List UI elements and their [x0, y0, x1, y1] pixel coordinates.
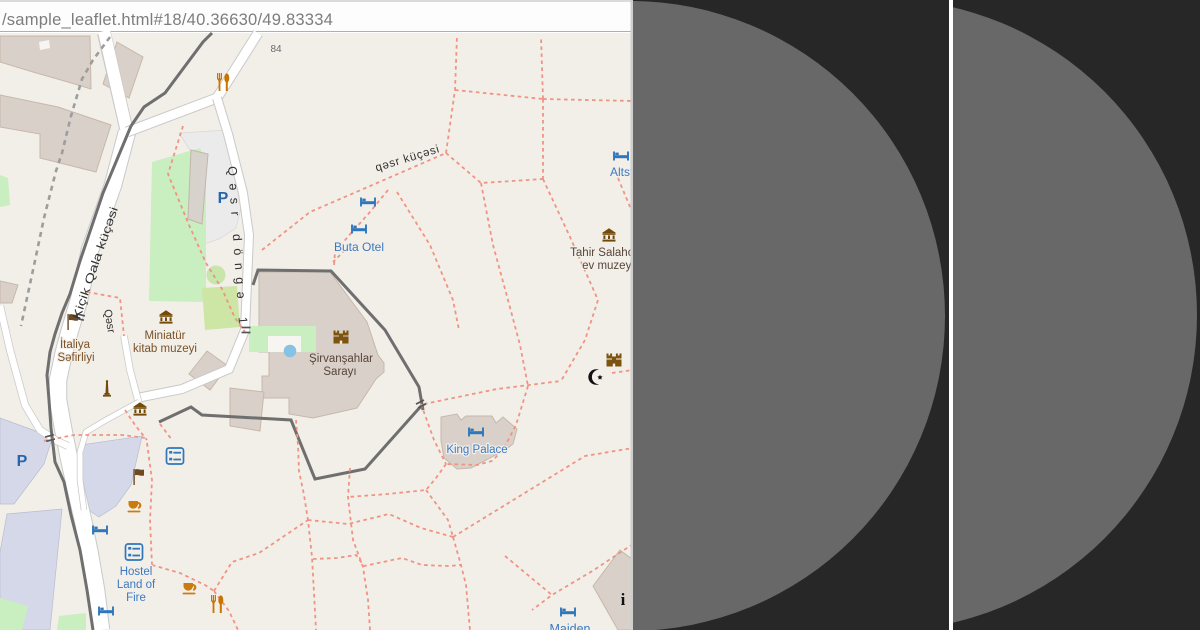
svg-text:P: P	[218, 190, 229, 207]
svg-text:İtaliya: İtaliya	[60, 338, 91, 351]
svg-text:Fire: Fire	[126, 592, 146, 604]
svg-text:Maiden: Maiden	[550, 622, 591, 630]
svg-text:Miniatür: Miniatür	[145, 330, 186, 342]
svg-text:Hostel: Hostel	[120, 566, 153, 578]
svg-text:i: i	[621, 590, 626, 609]
svg-text:P: P	[17, 453, 28, 470]
svg-text:84: 84	[270, 44, 282, 55]
svg-text:Land of: Land of	[117, 579, 156, 591]
svg-text:Səfirliyi: Səfirliyi	[57, 352, 94, 364]
svg-text:ev muzeyi: ev muzeyi	[582, 260, 633, 272]
svg-text:Altstadt: Altstadt	[610, 165, 633, 179]
svg-text:King Palace: King Palace	[446, 444, 507, 456]
svg-text:Buta Otel: Buta Otel	[334, 240, 384, 254]
svg-text:Sarayı: Sarayı	[323, 366, 356, 378]
svg-text:kitab muzeyi: kitab muzeyi	[133, 343, 197, 355]
svg-text:Şirvanşahlar: Şirvanşahlar	[309, 353, 373, 365]
svg-text:Tahir Salahov: Tahir Salahov	[570, 247, 633, 259]
